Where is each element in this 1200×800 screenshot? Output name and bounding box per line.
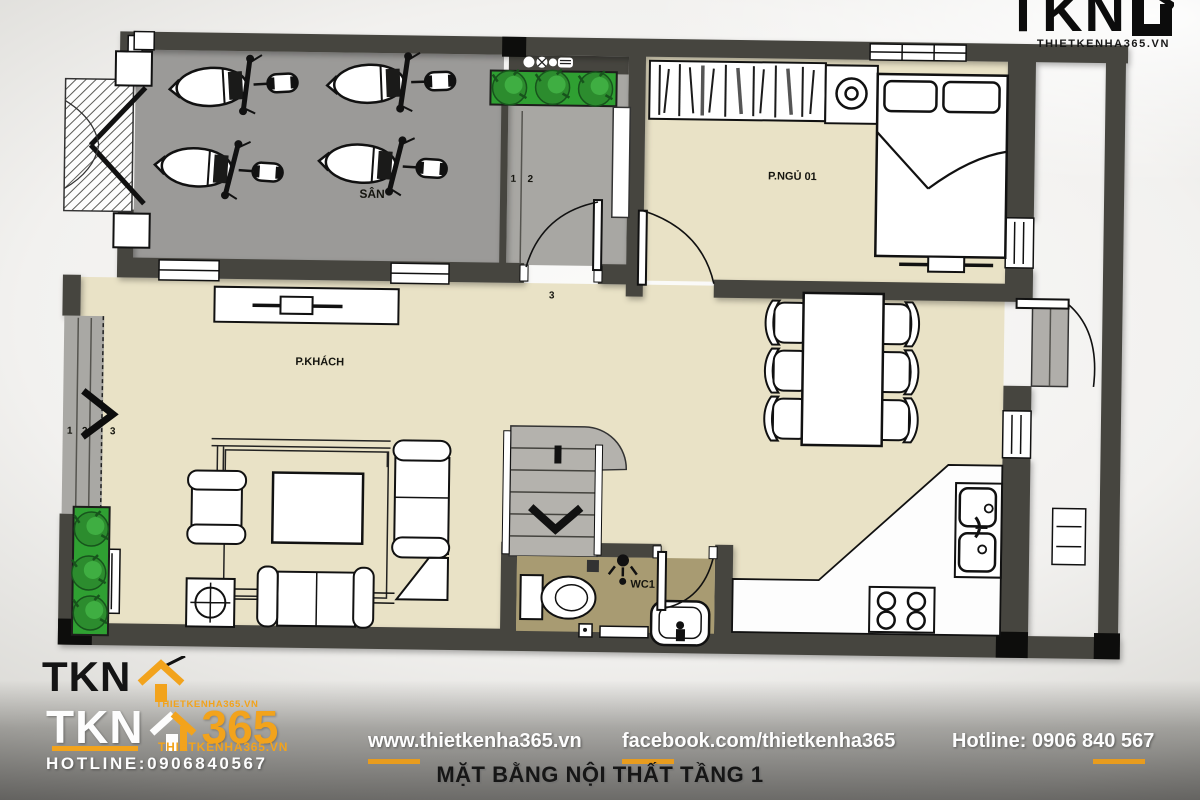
ac-unit: [1052, 508, 1086, 564]
yard-label: SÂN: [359, 186, 385, 201]
hotline-footer-text: Hotline: 0906 840 567: [952, 730, 1154, 753]
bedroom-label: P.NGỦ 01: [768, 169, 817, 183]
bed: [875, 74, 1008, 258]
wall-box: [587, 560, 599, 572]
wc-door-leaf: [657, 552, 666, 610]
coffee-table: [272, 473, 363, 544]
plant-icon: [492, 70, 526, 105]
plant-icon: [578, 71, 612, 106]
dining-table: [802, 293, 884, 446]
right-entry: [1015, 299, 1095, 387]
step-number: 1: [67, 426, 73, 437]
brand-text: TKN: [1006, 0, 1127, 40]
facebook-text: facebook.com/thietkenha365: [622, 730, 895, 753]
brand-site-text: THIETKENHA365.VN: [158, 740, 288, 754]
bedroom-door-leaf: [638, 211, 647, 285]
brand-text-white: TKN: [46, 704, 144, 750]
accent-bar: [52, 746, 138, 751]
house-icon: [1130, 0, 1174, 40]
side-door-leaf: [1017, 299, 1069, 309]
poster: SÂN: [0, 0, 1200, 800]
pillow: [884, 81, 936, 112]
brand-logo-top: TKN: [1006, 0, 1174, 40]
step-number: 1: [510, 174, 516, 185]
living-label: P.KHÁCH: [295, 355, 344, 369]
stove-icon: [869, 587, 935, 633]
plant-icon: [74, 511, 108, 546]
plant-icon: [73, 595, 107, 630]
brand-text-black: TKN: [42, 656, 131, 698]
toilet-icon: [520, 575, 596, 620]
pillow: [943, 82, 999, 113]
house-icon: [135, 656, 187, 704]
step-number: 2: [527, 174, 533, 185]
left-planter: [71, 507, 110, 636]
plan-title: MẶT BẰNG NỘI THẤT TẦNG 1: [0, 762, 1200, 788]
side-table: [186, 578, 235, 627]
entry-door-leaf: [593, 200, 602, 270]
plant-icon: [535, 69, 569, 104]
brand-site-text: THIETKENHA365.VN: [1037, 38, 1170, 50]
door-swing-arc: [1067, 305, 1095, 387]
step-number: 3: [110, 426, 116, 437]
dining: [764, 292, 920, 446]
step-number: 3: [549, 290, 555, 301]
shoe-cabinet: [612, 107, 631, 217]
kitchen-sink-icon: [955, 483, 1002, 578]
wc-label: WC1: [630, 579, 655, 591]
website-text: www.thietkenha365.vn: [368, 730, 582, 753]
bath-mat: [600, 626, 648, 638]
plant-icon: [72, 555, 106, 590]
wc: WC1: [516, 544, 717, 646]
